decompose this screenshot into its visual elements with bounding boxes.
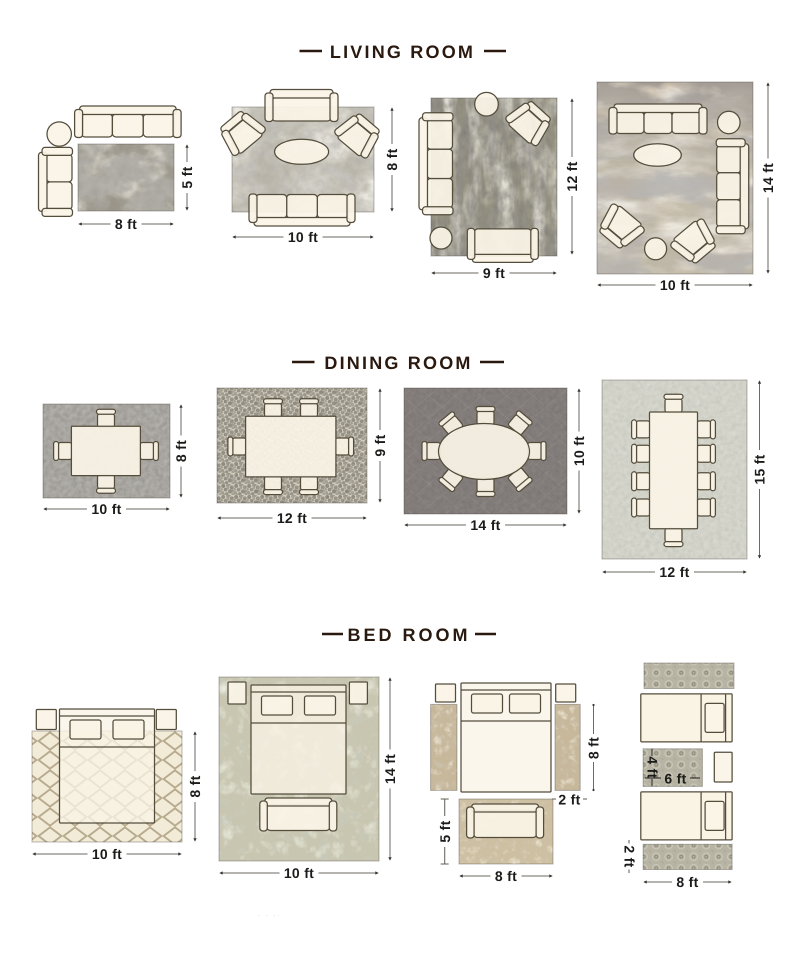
- svg-text:10 ft: 10 ft: [92, 846, 122, 862]
- svg-text:10 ft: 10 ft: [660, 277, 690, 293]
- svg-text:2 ft: 2 ft: [622, 845, 638, 867]
- svg-text:DINING ROOM: DINING ROOM: [324, 353, 472, 373]
- svg-text:12 ft: 12 ft: [564, 161, 580, 191]
- svg-text:LIVING ROOM: LIVING ROOM: [330, 42, 475, 62]
- svg-text:8 ft: 8 ft: [384, 148, 400, 170]
- svg-text:8 ft: 8 ft: [676, 874, 698, 890]
- svg-text:10 ft: 10 ft: [571, 436, 587, 466]
- svg-text:10 ft: 10 ft: [284, 865, 314, 881]
- svg-text:2 ft: 2 ft: [558, 791, 580, 807]
- svg-text:5 ft: 5 ft: [437, 820, 453, 842]
- svg-text:12 ft: 12 ft: [277, 510, 307, 526]
- svg-text:8 ft: 8 ft: [173, 440, 189, 462]
- svg-text:. . ..: . . ..: [258, 911, 282, 918]
- svg-text:5 ft: 5 ft: [179, 166, 195, 188]
- svg-text:6 ft: 6 ft: [664, 770, 686, 786]
- svg-text:8 ft: 8 ft: [586, 737, 602, 759]
- svg-text:12 ft: 12 ft: [659, 564, 689, 580]
- svg-text:14 ft: 14 ft: [760, 163, 776, 193]
- svg-text:4 ft: 4 ft: [645, 756, 661, 778]
- svg-text:15 ft: 15 ft: [752, 454, 768, 484]
- svg-text:14 ft: 14 ft: [382, 754, 398, 784]
- svg-text:8 ft: 8 ft: [495, 868, 517, 884]
- svg-text:10 ft: 10 ft: [91, 501, 121, 517]
- svg-text:10 ft: 10 ft: [288, 229, 318, 245]
- svg-text:BED ROOM: BED ROOM: [348, 625, 471, 645]
- svg-text:8 ft: 8 ft: [187, 775, 203, 797]
- svg-text:9 ft: 9 ft: [483, 265, 505, 281]
- svg-text:8 ft: 8 ft: [115, 216, 137, 232]
- svg-text:9 ft: 9 ft: [372, 434, 388, 456]
- svg-text:14 ft: 14 ft: [470, 517, 500, 533]
